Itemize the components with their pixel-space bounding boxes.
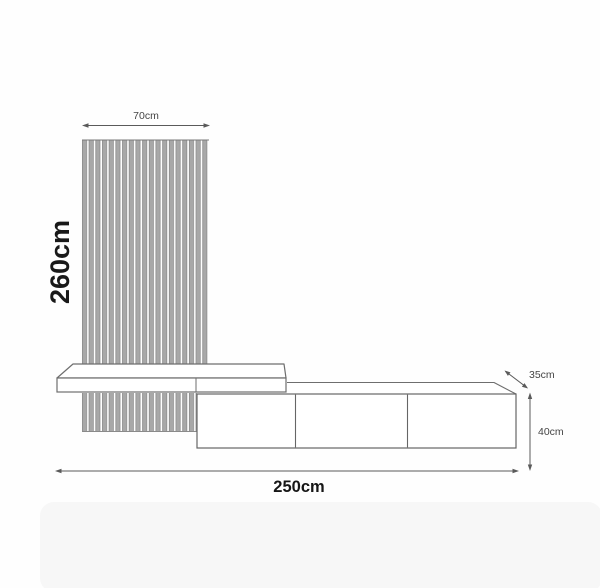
- tv-cabinet-top-face: [287, 383, 516, 395]
- floating-shelf-top-face: [57, 364, 286, 378]
- diagram-canvas: 70cm 260cm 35cm 40cm 250cm: [0, 0, 600, 588]
- bottom-card-edge: [40, 502, 600, 588]
- cabinet-height-label: 40cm: [538, 426, 564, 438]
- total-width-label: 250cm: [273, 478, 324, 496]
- floating-shelf: [57, 364, 286, 392]
- slat-panel-lower: [82, 393, 197, 432]
- cabinet-depth-label: 35cm: [529, 369, 555, 381]
- panel-width-label: 70cm: [133, 110, 159, 122]
- panel-height-label: 260cm: [45, 220, 75, 304]
- tv-cabinet-front: [197, 394, 516, 448]
- furniture-dimension-diagram: 70cm 260cm 35cm 40cm 250cm: [0, 0, 600, 588]
- floating-shelf-front: [57, 378, 286, 392]
- slat-panel-upper: [82, 140, 209, 365]
